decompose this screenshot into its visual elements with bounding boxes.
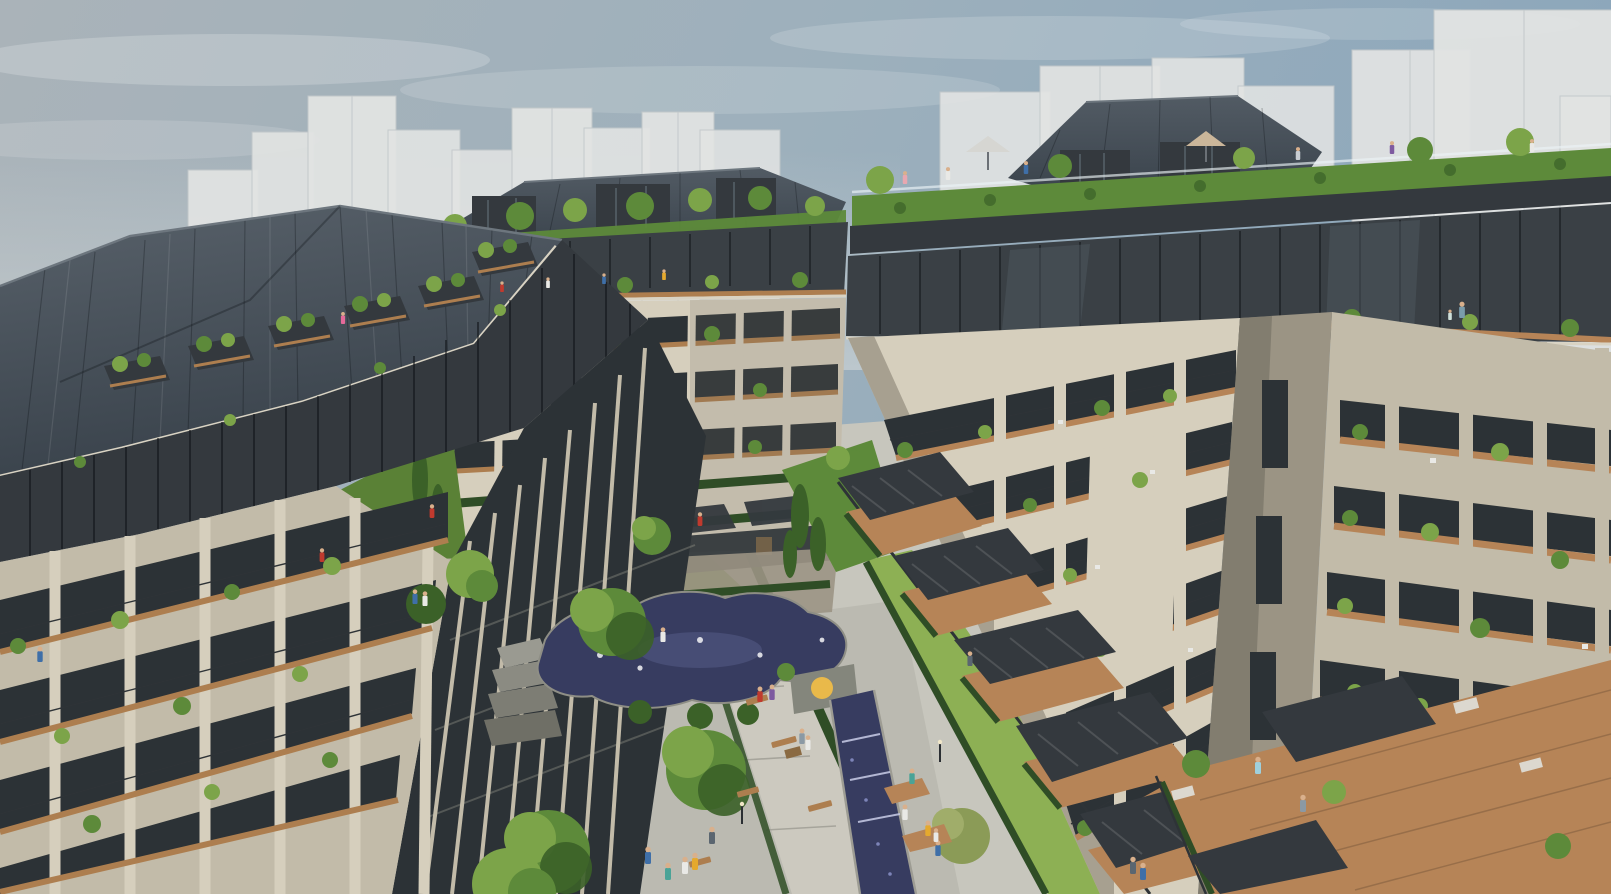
person xyxy=(967,651,972,666)
person xyxy=(1296,147,1301,160)
person xyxy=(925,821,930,836)
person xyxy=(320,548,325,562)
person xyxy=(660,627,665,642)
person xyxy=(709,827,715,844)
person xyxy=(903,171,908,184)
person xyxy=(1130,857,1136,874)
person xyxy=(682,857,688,874)
gap-cypress xyxy=(810,517,826,571)
person xyxy=(1530,139,1535,152)
person xyxy=(698,512,703,526)
person xyxy=(422,591,427,606)
person xyxy=(799,729,804,744)
person xyxy=(662,269,666,280)
architectural-rendering: Aerial view of a modern residential comp… xyxy=(0,0,1611,894)
person xyxy=(341,312,345,324)
person xyxy=(1024,161,1029,174)
person xyxy=(665,863,671,880)
right-blank-stone-pier xyxy=(1084,430,1180,668)
deck-tree xyxy=(1545,833,1571,859)
person xyxy=(37,647,42,662)
person xyxy=(902,805,907,820)
person xyxy=(1390,141,1395,154)
person xyxy=(1459,302,1465,318)
person xyxy=(909,769,914,784)
person xyxy=(500,281,504,292)
person xyxy=(769,685,774,700)
person xyxy=(1448,310,1452,320)
deck-tree xyxy=(1182,750,1210,778)
person xyxy=(1300,795,1306,812)
person xyxy=(934,828,939,842)
person xyxy=(805,735,810,750)
gap-tree xyxy=(826,446,850,470)
person xyxy=(1140,863,1146,880)
person xyxy=(692,853,698,870)
person xyxy=(946,167,951,180)
person xyxy=(757,687,762,702)
feature-wall-shrub xyxy=(777,663,795,681)
person xyxy=(1255,757,1261,774)
person xyxy=(430,504,435,518)
person xyxy=(412,589,417,604)
person xyxy=(935,841,940,856)
feature-wall-yellow-ring xyxy=(811,677,833,699)
deck-tree xyxy=(1322,780,1346,804)
person xyxy=(645,847,651,864)
left-residential-building xyxy=(0,206,706,894)
person xyxy=(546,277,550,288)
gap-cypress xyxy=(783,530,797,578)
person xyxy=(602,273,606,284)
